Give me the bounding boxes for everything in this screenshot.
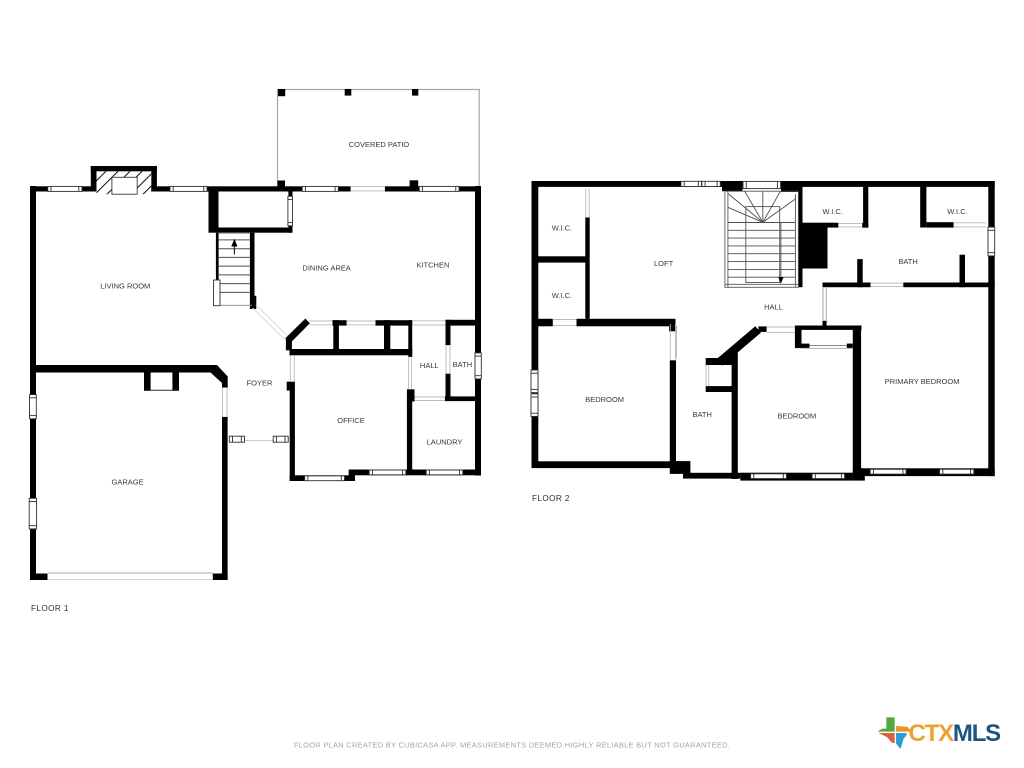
svg-text:HALL: HALL — [420, 361, 439, 370]
svg-text:FOYER: FOYER — [247, 379, 273, 388]
svg-text:OFFICE: OFFICE — [337, 416, 365, 425]
svg-text:KITCHEN: KITCHEN — [416, 261, 449, 270]
svg-text:W.I.C.: W.I.C. — [822, 207, 842, 216]
svg-text:FLOOR 2: FLOOR 2 — [532, 494, 570, 503]
svg-text:LIVING ROOM: LIVING ROOM — [100, 282, 150, 291]
svg-text:BEDROOM: BEDROOM — [585, 395, 624, 404]
svg-text:DINING AREA: DINING AREA — [302, 264, 350, 273]
svg-text:W.I.C.: W.I.C. — [947, 207, 967, 216]
svg-text:HALL: HALL — [764, 303, 783, 312]
svg-text:W.I.C.: W.I.C. — [552, 223, 572, 232]
svg-text:BATH: BATH — [453, 360, 472, 369]
svg-text:CTXMLS: CTXMLS — [909, 720, 1002, 747]
svg-text:FLOOR PLAN CREATED BY CUBICASA: FLOOR PLAN CREATED BY CUBICASA APP. MEAS… — [294, 741, 730, 750]
svg-text:BEDROOM: BEDROOM — [778, 411, 817, 420]
svg-text:BATH: BATH — [692, 410, 711, 419]
svg-text:COVERED PATIO: COVERED PATIO — [349, 140, 410, 149]
svg-text:LOFT: LOFT — [654, 259, 674, 268]
svg-text:FLOOR 1: FLOOR 1 — [31, 604, 69, 613]
svg-text:LAUNDRY: LAUNDRY — [427, 437, 463, 446]
svg-text:BATH: BATH — [898, 257, 917, 266]
svg-text:GARAGE: GARAGE — [112, 477, 144, 486]
svg-text:W.I.C.: W.I.C. — [552, 291, 572, 300]
svg-text:PRIMARY BEDROOM: PRIMARY BEDROOM — [885, 377, 960, 386]
